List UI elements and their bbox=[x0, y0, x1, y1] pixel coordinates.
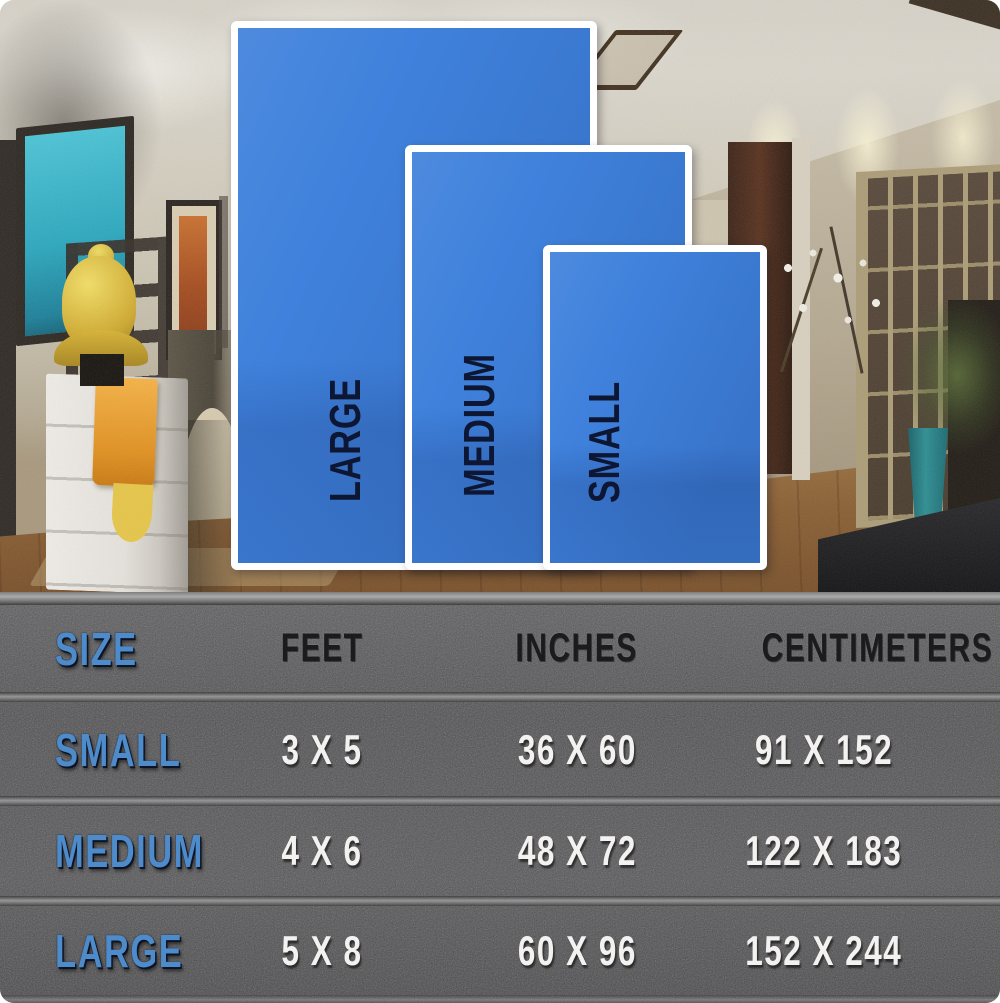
rug-medium-label: MEDIUM bbox=[455, 353, 505, 497]
orange-towel bbox=[92, 377, 158, 487]
row-large-size: LARGE bbox=[0, 924, 193, 978]
row-medium-inches: 48 X 72 bbox=[452, 827, 702, 875]
divider-ridge bbox=[0, 692, 1000, 702]
row-small-inches: 36 X 60 bbox=[452, 726, 702, 774]
divider-ridge bbox=[0, 995, 1000, 1003]
art-canvas bbox=[179, 216, 207, 334]
header-centimeters: CENTIMETERS bbox=[702, 626, 946, 671]
rug-large-label: LARGE bbox=[321, 378, 371, 502]
row-small-size: SMALL bbox=[0, 723, 193, 777]
row-large-inches: 60 X 96 bbox=[452, 927, 702, 975]
frame-edge bbox=[219, 196, 228, 348]
table-header-row: SIZE FEET INCHES CENTIMETERS bbox=[0, 605, 1000, 692]
row-small-centimeters: 91 X 152 bbox=[702, 726, 946, 774]
row-medium-centimeters: 122 X 183 bbox=[702, 827, 946, 875]
header-inches: INCHES bbox=[452, 626, 702, 671]
table-row-medium: MEDIUM 4 X 6 48 X 72 122 X 183 bbox=[0, 806, 1000, 896]
row-small-feet: 3 X 5 bbox=[193, 726, 452, 774]
divider-ridge bbox=[0, 896, 1000, 906]
rug-small-label: SMALL bbox=[580, 381, 630, 503]
table-row-small: SMALL 3 X 5 36 X 60 91 X 152 bbox=[0, 704, 1000, 796]
row-medium-size: MEDIUM bbox=[0, 824, 193, 878]
rug-size-chart-poster: LARGE MEDIUM SMALL SIZE FEET INCHES CENT… bbox=[0, 0, 1000, 1003]
rug-size-small bbox=[543, 245, 767, 570]
orchid-flowers bbox=[768, 238, 893, 370]
size-table: SIZE FEET INCHES CENTIMETERS SMALL 3 X 5… bbox=[0, 592, 1000, 1003]
table-row-large: LARGE 5 X 8 60 X 96 152 X 244 bbox=[0, 906, 1000, 996]
row-large-feet: 5 X 8 bbox=[193, 927, 452, 975]
divider-ridge bbox=[0, 592, 1000, 605]
room-photo: LARGE MEDIUM SMALL bbox=[0, 0, 1000, 592]
header-size: SIZE bbox=[0, 622, 193, 676]
divider-ridge bbox=[0, 796, 1000, 806]
statue-base bbox=[80, 354, 124, 386]
header-feet: FEET bbox=[193, 626, 452, 671]
row-medium-feet: 4 X 6 bbox=[193, 827, 452, 875]
wall-post bbox=[0, 140, 16, 592]
row-large-centimeters: 152 X 244 bbox=[702, 927, 946, 975]
